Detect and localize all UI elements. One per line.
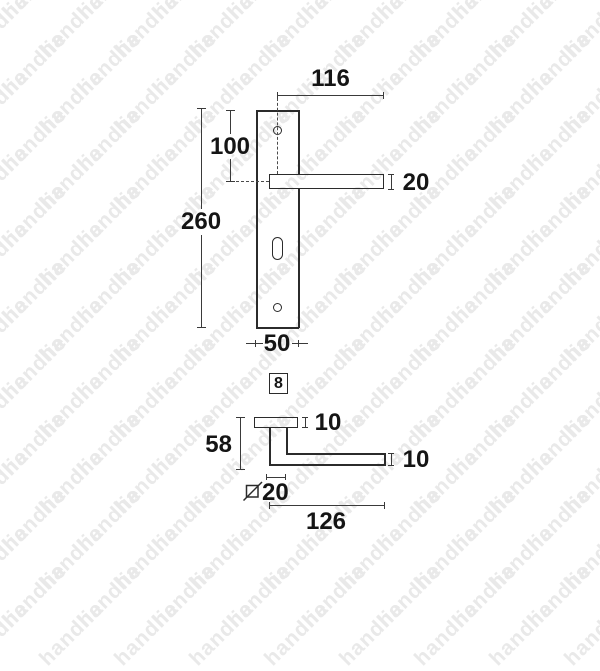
dim-line-neck20 xyxy=(266,477,286,478)
dim-20-serif-top xyxy=(388,174,394,175)
handle-technical-drawing: 116 100 260 20 50 8 xyxy=(0,0,600,600)
dim-label-100: 100 xyxy=(206,134,254,159)
dim-50-tick-left xyxy=(255,340,256,347)
dim-20-ibeam xyxy=(391,174,392,190)
plate-right-edge-lower xyxy=(298,189,300,328)
dim-50-tick-right xyxy=(298,340,299,347)
centerline-vertical xyxy=(277,98,278,174)
watermark-text: handlie xyxy=(0,597,34,671)
spindle-square-symbol: 8 xyxy=(269,373,288,394)
dim-116-tick-right xyxy=(383,92,384,99)
dim-line-260-lower xyxy=(201,235,202,327)
dim-10cap-serif-top xyxy=(302,417,308,418)
watermark-text: handlie xyxy=(485,597,559,671)
dim-10cap-serif-bottom xyxy=(302,427,308,428)
dim-100-tick-bottom xyxy=(226,181,235,182)
neck-inner-edge xyxy=(286,427,288,454)
square-profile-icon xyxy=(243,481,263,501)
plate-bottom-edge xyxy=(256,327,299,329)
dim-label-116: 116 xyxy=(303,66,358,91)
dim-126-tick-left xyxy=(269,502,270,509)
watermark-text: handlie xyxy=(410,597,484,671)
dim-label-260: 260 xyxy=(181,209,221,234)
plate-right-edge-upper xyxy=(298,110,300,174)
dim-line-100-upper xyxy=(230,111,231,134)
handle-bar xyxy=(269,174,384,189)
dim-10grip-serif-top xyxy=(388,453,394,454)
dim-label-50: 50 xyxy=(263,331,291,356)
dim-label-10-cap: 10 xyxy=(311,410,345,435)
dim-126-tick-right xyxy=(384,502,385,509)
watermark-text: handlie xyxy=(260,597,334,671)
dim-58-tick-bottom xyxy=(236,469,245,470)
rose-cap xyxy=(254,417,298,428)
dim-58-tick-top xyxy=(236,417,245,418)
spindle-size-label: 8 xyxy=(274,375,283,392)
neck-outer-edge xyxy=(269,427,271,466)
dim-line-100-lower xyxy=(230,159,231,181)
dim-260-tick-top xyxy=(197,108,206,109)
dim-260-tick-bottom xyxy=(197,327,206,328)
centerline-horizontal xyxy=(231,181,269,182)
plate-left-edge xyxy=(256,110,258,328)
watermark-text: handlie xyxy=(560,597,600,671)
grip-end-edge xyxy=(384,453,386,466)
dim-116-tick-left xyxy=(277,92,278,99)
dim-label-20: 20 xyxy=(399,170,433,195)
dim-label-126: 126 xyxy=(299,509,353,534)
watermark-text: handlie xyxy=(35,597,109,671)
plate-bottom-hole xyxy=(273,303,282,312)
dim-label-58: 58 xyxy=(199,432,232,457)
dim-label-neck-20: 20 xyxy=(262,480,296,505)
dim-100-tick-top xyxy=(226,110,235,111)
watermark-text: handlie xyxy=(335,597,409,671)
dim-10grip-serif-bottom xyxy=(388,465,394,466)
keyhole xyxy=(272,237,283,260)
dim-line-58 xyxy=(240,417,241,470)
dim-line-260-upper xyxy=(201,108,202,209)
dim-20-serif-bottom xyxy=(388,189,394,190)
dim-label-10-grip: 10 xyxy=(399,447,433,472)
grip-bottom-edge xyxy=(269,464,385,466)
dim-line-126 xyxy=(269,505,385,506)
dim-line-50-right xyxy=(292,343,308,344)
grip-top-edge xyxy=(286,453,385,455)
watermark-text: handlie xyxy=(185,597,259,671)
dim-line-116 xyxy=(277,95,384,96)
watermark-text: handlie xyxy=(110,597,184,671)
